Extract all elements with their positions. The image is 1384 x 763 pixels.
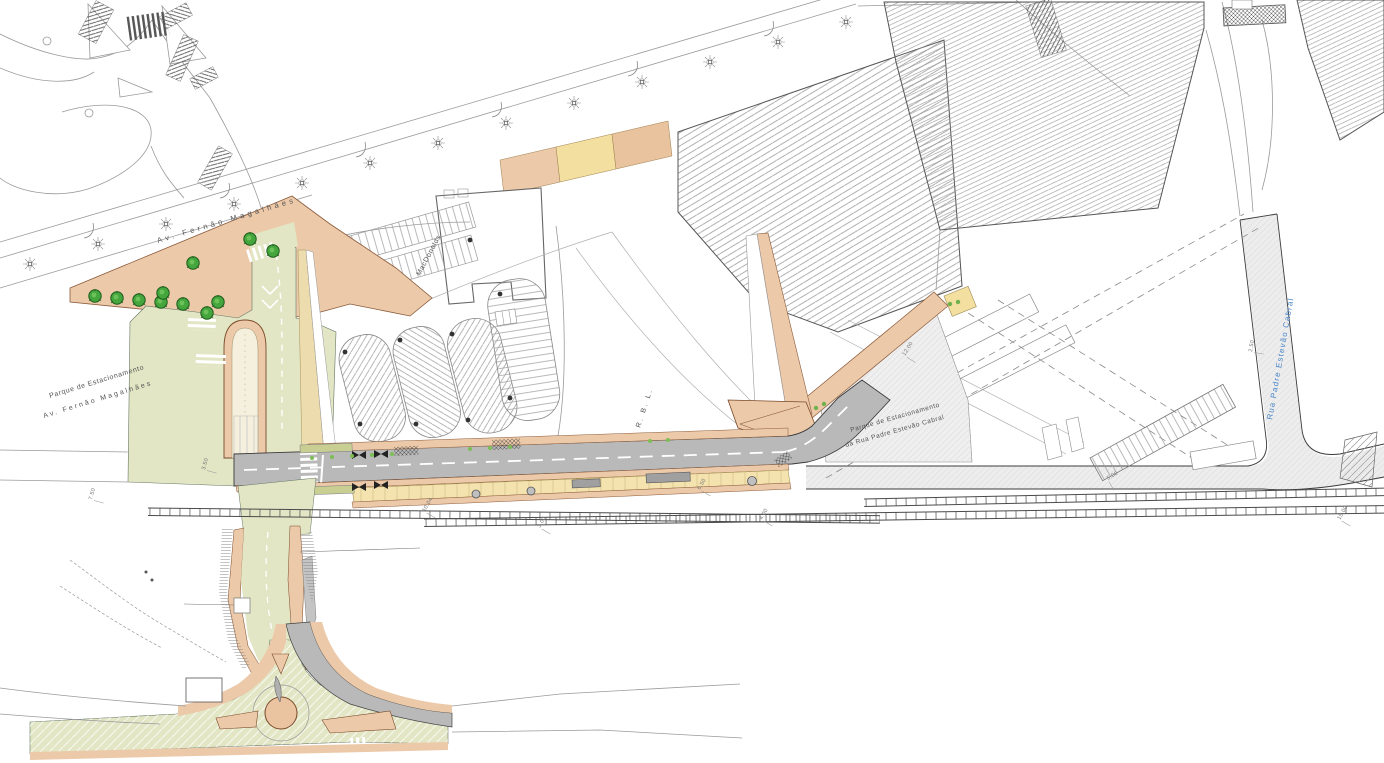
bus-shelter <box>572 479 600 488</box>
dim-text: 2.50 <box>1248 340 1256 353</box>
bus-bays <box>234 416 258 458</box>
bus-shelter <box>646 472 690 483</box>
column <box>472 490 480 498</box>
grass-verge <box>300 443 352 453</box>
existing-roads-northwest <box>0 1 266 226</box>
column <box>748 477 757 486</box>
building-fareast-hatched <box>1223 0 1384 140</box>
column <box>527 487 535 495</box>
traffic-island <box>118 78 152 97</box>
dim-text: 7.50 <box>88 487 97 500</box>
pavement-strip <box>500 121 672 195</box>
building-outline <box>186 678 222 702</box>
crosswalk-hatched <box>78 1 232 191</box>
hatched-parcel <box>1340 432 1377 487</box>
central-island <box>265 697 297 729</box>
vegetation-contour <box>70 560 226 662</box>
site-plan-canvas: Av. Fernão Magalhães Parque de Estaciona… <box>0 0 1384 763</box>
label-rbl: R. B. L. <box>635 388 654 429</box>
roundabout <box>0 622 742 760</box>
